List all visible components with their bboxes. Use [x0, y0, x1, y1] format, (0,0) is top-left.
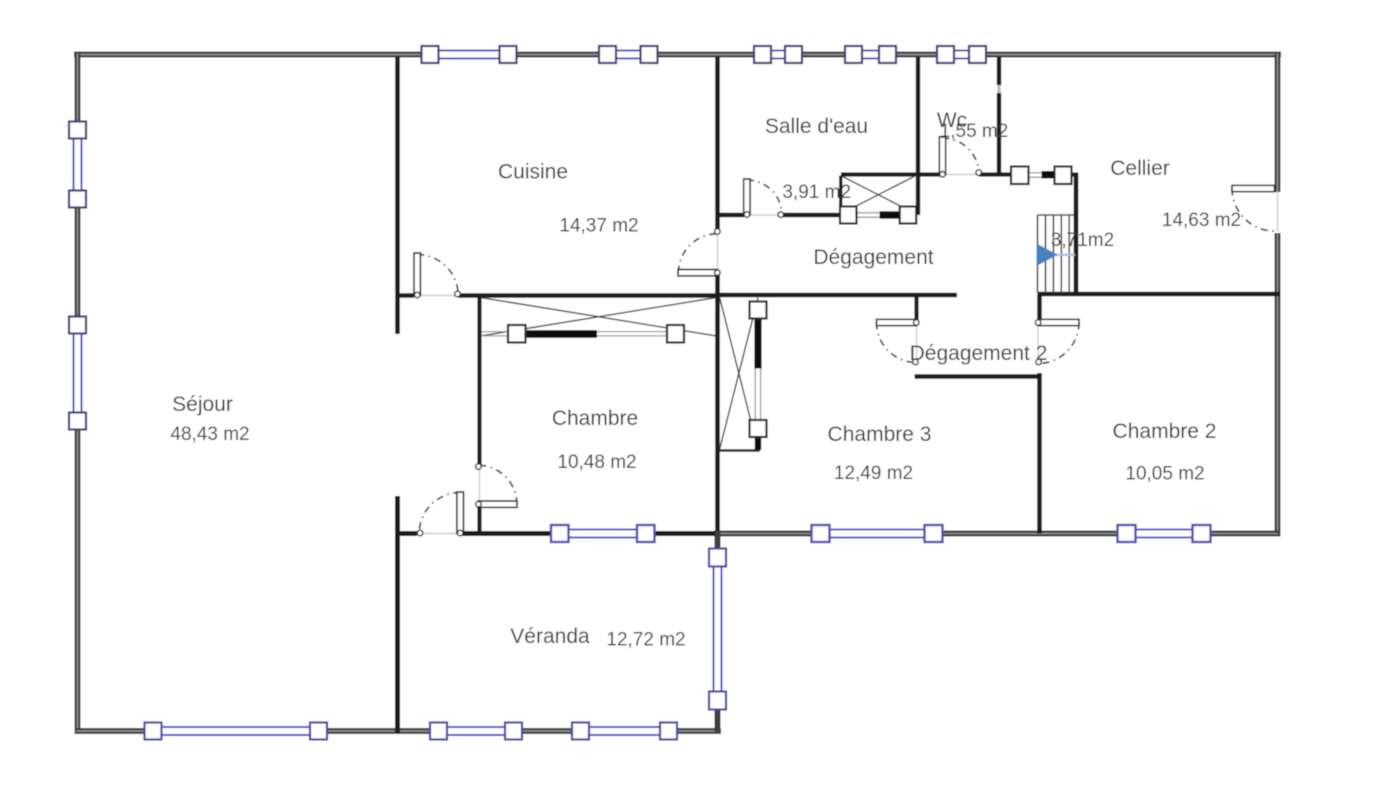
svg-text:12,72 m2: 12,72 m2 — [606, 630, 685, 651]
svg-text:Salle d'eau: Salle d'eau — [765, 115, 868, 138]
svg-text:Séjour: Séjour — [172, 393, 233, 416]
svg-text:10,48 m2: 10,48 m2 — [557, 452, 636, 473]
svg-text:Dégagement 2: Dégagement 2 — [910, 342, 1048, 365]
svg-text:3,71m2: 3,71m2 — [1051, 230, 1114, 251]
svg-text:10,05 m2: 10,05 m2 — [1125, 464, 1204, 485]
svg-text:Cellier: Cellier — [1110, 157, 1170, 180]
svg-text:12,49 m2: 12,49 m2 — [834, 463, 913, 484]
svg-text:Chambre 3: Chambre 3 — [828, 423, 932, 446]
svg-text:14,63 m2: 14,63 m2 — [1162, 210, 1241, 231]
svg-text:Chambre 2: Chambre 2 — [1113, 420, 1217, 443]
svg-text:Cuisine: Cuisine — [498, 161, 568, 184]
svg-text:48,43 m2: 48,43 m2 — [170, 424, 249, 445]
svg-text:14,37 m2: 14,37 m2 — [559, 216, 638, 237]
svg-text:Véranda: Véranda — [510, 625, 590, 648]
svg-text:Dégagement: Dégagement — [813, 246, 933, 269]
svg-text:Chambre: Chambre — [552, 407, 638, 430]
svg-text:1,55 m2: 1,55 m2 — [940, 121, 1009, 142]
svg-text:3,91 m2: 3,91 m2 — [782, 182, 851, 203]
